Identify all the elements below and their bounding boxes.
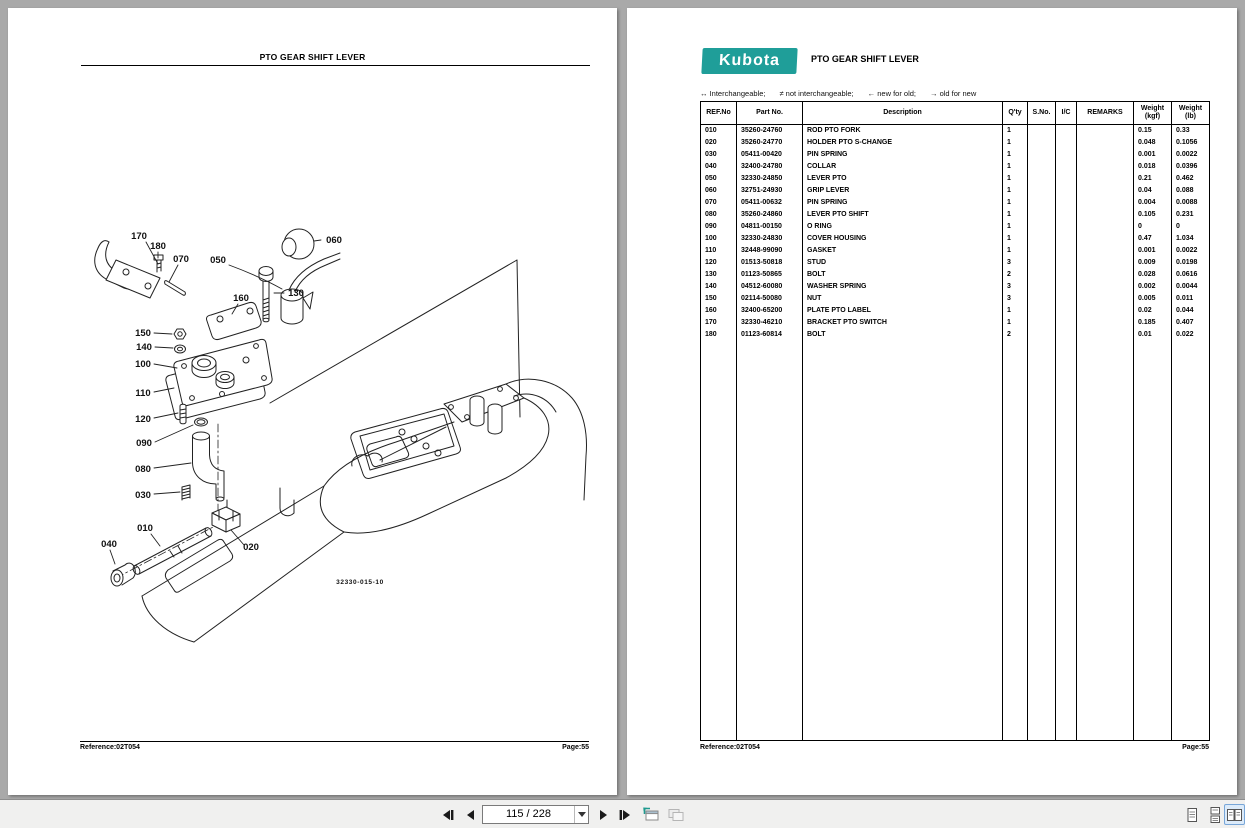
table-cell: 0.0396 xyxy=(1172,161,1209,173)
table-cell xyxy=(1028,209,1056,221)
table-cell: 0.04 xyxy=(1134,185,1172,197)
table-cell: WASHER SPRING xyxy=(803,281,1003,293)
part-oring-090 xyxy=(195,418,208,426)
table-cell xyxy=(1056,173,1077,185)
table-cell: 1 xyxy=(1003,209,1028,221)
table-cell xyxy=(1028,245,1056,257)
right-page: Kubota PTO GEAR SHIFT LEVER ↔ Interchang… xyxy=(627,8,1237,795)
table-cell: 3 xyxy=(1003,257,1028,269)
table-cell xyxy=(1028,269,1056,281)
table-cell: PIN SPRING xyxy=(803,149,1003,161)
table-cell: 1 xyxy=(1003,233,1028,245)
table-cell: 1 xyxy=(1003,245,1028,257)
table-cell: 030 xyxy=(701,149,737,161)
table-cell xyxy=(1077,137,1134,149)
table-cell: 0.0044 xyxy=(1172,281,1209,293)
single-page-view-button[interactable] xyxy=(1181,804,1202,825)
callout-050: 050 xyxy=(210,255,226,266)
table-cell xyxy=(1077,305,1134,317)
table-cell xyxy=(1077,317,1134,329)
next-page-icon xyxy=(595,807,611,823)
table-cell: BRACKET PTO SWITCH xyxy=(803,317,1003,329)
table-cell xyxy=(1077,185,1134,197)
table-cell: 070 xyxy=(701,197,737,209)
table-cell: 0.009 xyxy=(1134,257,1172,269)
table-cell xyxy=(1077,209,1134,221)
left-page: PTO GEAR SHIFT LEVER xyxy=(8,8,617,795)
column-header: I/C xyxy=(1056,102,1077,125)
table-cell: 32448-99090 xyxy=(737,245,803,257)
table-cell xyxy=(1028,233,1056,245)
table-cell xyxy=(1077,257,1134,269)
table-cell xyxy=(1056,161,1077,173)
table-cell: 180 xyxy=(701,329,737,341)
table-cell: 35260-24760 xyxy=(737,125,803,137)
table-cell: 0.231 xyxy=(1172,209,1209,221)
table-cell: 32400-24780 xyxy=(737,161,803,173)
combo-dropdown-button[interactable] xyxy=(574,806,588,823)
table-cell: 0.21 xyxy=(1134,173,1172,185)
next-view-button[interactable] xyxy=(664,804,685,825)
callout-180: 180 xyxy=(150,241,166,252)
table-cell xyxy=(1077,293,1134,305)
table-cell xyxy=(1028,293,1056,305)
callout-110: 110 xyxy=(135,388,150,399)
table-cell xyxy=(1077,149,1134,161)
column-header: Q'ty xyxy=(1003,102,1028,125)
next-view-icon xyxy=(665,806,685,823)
table-cell: 2 xyxy=(1003,329,1028,341)
left-page-footer: Reference:02T054 Page:55 xyxy=(80,744,589,751)
table-cell: 32751-24930 xyxy=(737,185,803,197)
table-cell xyxy=(1077,233,1134,245)
table-cell xyxy=(1028,305,1056,317)
table-cell xyxy=(1077,125,1134,137)
two-page-view-icon xyxy=(1226,807,1243,823)
table-cell: 020 xyxy=(701,137,737,149)
table-cell: 0.01 xyxy=(1134,329,1172,341)
callout-150: 150 xyxy=(135,328,151,339)
table-cell: COVER HOUSING xyxy=(803,233,1003,245)
table-cell: 0.407 xyxy=(1172,317,1209,329)
table-cell xyxy=(1056,197,1077,209)
table-cell: 0.15 xyxy=(1134,125,1172,137)
table-cell xyxy=(1077,173,1134,185)
single-page-view-icon xyxy=(1184,807,1200,823)
filler-cell xyxy=(1028,341,1056,740)
table-cell: 040 xyxy=(701,161,737,173)
first-page-button[interactable] xyxy=(437,804,458,825)
footer-rule xyxy=(80,741,589,742)
table-cell: 0 xyxy=(1172,221,1209,233)
callout-010: 010 xyxy=(137,523,153,534)
table-cell: 1 xyxy=(1003,161,1028,173)
table-cell: 170 xyxy=(701,317,737,329)
reference-label: Reference:02T054 xyxy=(80,744,140,751)
next-page-button[interactable] xyxy=(592,804,613,825)
callout-080: 080 xyxy=(135,464,151,475)
column-header: REF.No xyxy=(701,102,737,125)
filler-cell xyxy=(1077,341,1134,740)
table-cell: 0.001 xyxy=(1134,245,1172,257)
table-cell xyxy=(1077,245,1134,257)
callout-130: 130 xyxy=(288,288,304,299)
callout-100: 100 xyxy=(135,359,151,370)
part-bolt-130 xyxy=(259,267,273,322)
drawing-number: 32330-015-10 xyxy=(336,579,384,586)
legend-item-0: ↔ Interchangeable; xyxy=(700,89,765,98)
table-cell: 04512-60080 xyxy=(737,281,803,293)
filler-cell xyxy=(1134,341,1172,740)
table-cell xyxy=(1056,221,1077,233)
table-cell xyxy=(1056,329,1077,341)
table-cell xyxy=(1028,257,1056,269)
part-nut-150 xyxy=(174,329,186,339)
table-cell: 01513-50818 xyxy=(737,257,803,269)
table-cell xyxy=(1056,257,1077,269)
continuous-view-button[interactable] xyxy=(1204,804,1225,825)
table-cell xyxy=(1077,197,1134,209)
table-cell: 0.33 xyxy=(1172,125,1209,137)
callout-020: 020 xyxy=(243,542,259,553)
part-plate-160 xyxy=(207,302,262,339)
page-label: Page:55 xyxy=(1182,744,1209,751)
table-cell: 1 xyxy=(1003,125,1028,137)
table-cell: 0.0022 xyxy=(1172,245,1209,257)
table-cell xyxy=(1028,317,1056,329)
table-cell: 35260-24860 xyxy=(737,209,803,221)
table-cell: BOLT xyxy=(803,329,1003,341)
column-header: Description xyxy=(803,102,1003,125)
table-cell: ROD PTO FORK xyxy=(803,125,1003,137)
table-cell xyxy=(1056,293,1077,305)
table-cell: 1 xyxy=(1003,197,1028,209)
table-cell: NUT xyxy=(803,293,1003,305)
callout-140: 140 xyxy=(136,342,152,353)
callout-030: 030 xyxy=(135,490,151,501)
table-cell: 3 xyxy=(1003,293,1028,305)
page-label: Page:55 xyxy=(562,744,589,751)
table-cell xyxy=(1056,281,1077,293)
column-header: S.No. xyxy=(1028,102,1056,125)
table-cell: 0.0198 xyxy=(1172,257,1209,269)
table-cell: PLATE PTO LABEL xyxy=(803,305,1003,317)
table-cell: 1 xyxy=(1003,185,1028,197)
table-cell xyxy=(1077,221,1134,233)
part-bolt-180 xyxy=(154,255,163,272)
table-cell: 120 xyxy=(701,257,737,269)
table-cell: 0.088 xyxy=(1172,185,1209,197)
table-cell: 060 xyxy=(701,185,737,197)
filler-cell xyxy=(701,341,737,740)
table-cell: 1 xyxy=(1003,221,1028,233)
part-spring-pin-030 xyxy=(182,485,190,500)
table-cell: 2 xyxy=(1003,269,1028,281)
table-cell: 1.034 xyxy=(1172,233,1209,245)
reference-label: Reference:02T054 xyxy=(700,744,760,751)
part-shift-lever-080 xyxy=(193,424,225,510)
page-indicator[interactable]: 115 / 228 xyxy=(483,806,574,823)
legend-item-3: → old for new xyxy=(930,89,976,98)
previous-view-button[interactable] xyxy=(640,804,661,825)
table-cell: 0 xyxy=(1134,221,1172,233)
table-cell: 110 xyxy=(701,245,737,257)
table-cell: 1 xyxy=(1003,173,1028,185)
callout-040: 040 xyxy=(101,539,117,550)
table-cell xyxy=(1056,137,1077,149)
table-cell: 3 xyxy=(1003,281,1028,293)
table-cell: 050 xyxy=(701,173,737,185)
parts-table: REF.NoPart No.DescriptionQ'tyS.No.I/CREM… xyxy=(700,101,1210,741)
part-stud-120 xyxy=(180,404,186,424)
table-cell: 0.044 xyxy=(1172,305,1209,317)
filler-cell xyxy=(803,341,1003,740)
previous-page-icon xyxy=(463,807,479,823)
table-cell xyxy=(1056,125,1077,137)
table-cell xyxy=(1028,173,1056,185)
table-cell xyxy=(1056,149,1077,161)
table-cell xyxy=(1028,137,1056,149)
table-cell xyxy=(1028,221,1056,233)
table-cell: GASKET xyxy=(803,245,1003,257)
callout-120: 120 xyxy=(135,414,151,425)
filler-cell xyxy=(737,341,803,740)
table-cell: 35260-24770 xyxy=(737,137,803,149)
table-cell xyxy=(1028,149,1056,161)
table-cell: 090 xyxy=(701,221,737,233)
callout-160: 160 xyxy=(233,293,249,304)
table-cell: O RING xyxy=(803,221,1003,233)
table-cell: 160 xyxy=(701,305,737,317)
table-cell: 0.022 xyxy=(1172,329,1209,341)
table-cell: 0.47 xyxy=(1134,233,1172,245)
part-washer-140 xyxy=(175,345,186,353)
viewer-toolbar: 115 / 228 xyxy=(0,799,1245,828)
table-cell: GRIP LEVER xyxy=(803,185,1003,197)
table-cell: 130 xyxy=(701,269,737,281)
table-cell: 1 xyxy=(1003,305,1028,317)
table-cell xyxy=(1056,209,1077,221)
table-cell: 0.0616 xyxy=(1172,269,1209,281)
table-cell: 0.018 xyxy=(1134,161,1172,173)
column-header: REMARKS xyxy=(1077,102,1134,125)
part-holder-020 xyxy=(212,500,240,532)
legend-item-2: ← new for old; xyxy=(868,89,916,98)
first-page-icon xyxy=(440,807,456,823)
table-cell: 0.185 xyxy=(1134,317,1172,329)
table-cell: 0.1056 xyxy=(1172,137,1209,149)
table-cell: 0.462 xyxy=(1172,173,1209,185)
two-page-view-button[interactable] xyxy=(1224,804,1245,825)
table-cell: 0.005 xyxy=(1134,293,1172,305)
last-page-button[interactable] xyxy=(614,804,635,825)
table-cell: 0.011 xyxy=(1172,293,1209,305)
table-cell: 010 xyxy=(701,125,737,137)
table-cell: 150 xyxy=(701,293,737,305)
table-cell: 080 xyxy=(701,209,737,221)
table-cell: LEVER PTO xyxy=(803,173,1003,185)
table-cell xyxy=(1077,269,1134,281)
table-cell: 1 xyxy=(1003,317,1028,329)
previous-view-icon xyxy=(641,806,661,823)
table-cell xyxy=(1028,329,1056,341)
table-cell: 32400-65200 xyxy=(737,305,803,317)
table-cell: 04811-00150 xyxy=(737,221,803,233)
last-page-icon xyxy=(617,807,633,823)
table-cell xyxy=(1028,125,1056,137)
right-page-title: PTO GEAR SHIFT LEVER xyxy=(811,54,919,64)
table-cell xyxy=(1056,305,1077,317)
table-cell: 0.028 xyxy=(1134,269,1172,281)
table-cell: 0.001 xyxy=(1134,149,1172,161)
table-cell: 0.0022 xyxy=(1172,149,1209,161)
table-cell: 0.002 xyxy=(1134,281,1172,293)
part-pin-070 xyxy=(165,281,186,296)
column-header: Part No. xyxy=(737,102,803,125)
table-cell: 32330-46210 xyxy=(737,317,803,329)
table-cell xyxy=(1077,329,1134,341)
table-cell xyxy=(1028,197,1056,209)
callout-170: 170 xyxy=(131,231,147,242)
table-cell: 1 xyxy=(1003,149,1028,161)
table-cell: 05411-00420 xyxy=(737,149,803,161)
callout-060: 060 xyxy=(326,235,342,246)
table-cell: COLLAR xyxy=(803,161,1003,173)
part-cover-100 xyxy=(174,339,272,405)
table-cell: 32330-24850 xyxy=(737,173,803,185)
table-cell: 0.0088 xyxy=(1172,197,1209,209)
table-cell: 0.048 xyxy=(1134,137,1172,149)
column-header: Weight (lb) xyxy=(1172,102,1209,125)
table-cell xyxy=(1056,245,1077,257)
table-cell xyxy=(1056,269,1077,281)
table-cell: BOLT xyxy=(803,269,1003,281)
filler-cell xyxy=(1056,341,1077,740)
pdf-viewer-canvas: PTO GEAR SHIFT LEVER xyxy=(0,0,1245,828)
table-cell: 02114-50080 xyxy=(737,293,803,305)
callout-070: 070 xyxy=(173,254,189,265)
filler-cell xyxy=(1003,341,1028,740)
interchangeability-legend: ↔ Interchangeable;≠ not interchangeable;… xyxy=(700,89,976,98)
legend-item-1: ≠ not interchangeable; xyxy=(779,89,853,98)
table-cell xyxy=(1056,317,1077,329)
exploded-parts-diagram: 32330-015-10 170180070050060130160150140… xyxy=(8,8,617,795)
table-cell: 32330-24830 xyxy=(737,233,803,245)
table-cell: LEVER PTO SHIFT xyxy=(803,209,1003,221)
callout-090: 090 xyxy=(136,438,152,449)
column-header: Weight (kgf) xyxy=(1134,102,1172,125)
table-cell: 05411-00632 xyxy=(737,197,803,209)
filler-cell xyxy=(1172,341,1209,740)
table-cell: 140 xyxy=(701,281,737,293)
table-cell: STUD xyxy=(803,257,1003,269)
page-number-combo[interactable]: 115 / 228 xyxy=(482,805,589,824)
continuous-view-icon xyxy=(1207,807,1223,823)
table-cell: 0.004 xyxy=(1134,197,1172,209)
chevron-down-icon xyxy=(578,812,586,817)
table-cell xyxy=(1028,281,1056,293)
right-page-footer: Reference:02T054 Page:55 xyxy=(700,744,1209,751)
previous-page-button[interactable] xyxy=(460,804,481,825)
table-cell xyxy=(1028,161,1056,173)
table-cell: 01123-60814 xyxy=(737,329,803,341)
table-cell: 0.02 xyxy=(1134,305,1172,317)
table-cell: 100 xyxy=(701,233,737,245)
table-cell: 1 xyxy=(1003,137,1028,149)
table-cell: PIN SPRING xyxy=(803,197,1003,209)
kubota-logo: Kubota xyxy=(701,48,797,74)
table-cell xyxy=(1077,281,1134,293)
table-cell xyxy=(1077,161,1134,173)
table-cell: HOLDER PTO S-CHANGE xyxy=(803,137,1003,149)
table-cell: 01123-50865 xyxy=(737,269,803,281)
table-cell xyxy=(1056,233,1077,245)
part-grip-060 xyxy=(282,229,314,259)
table-cell xyxy=(1028,185,1056,197)
table-cell xyxy=(1056,185,1077,197)
table-cell: 0.105 xyxy=(1134,209,1172,221)
